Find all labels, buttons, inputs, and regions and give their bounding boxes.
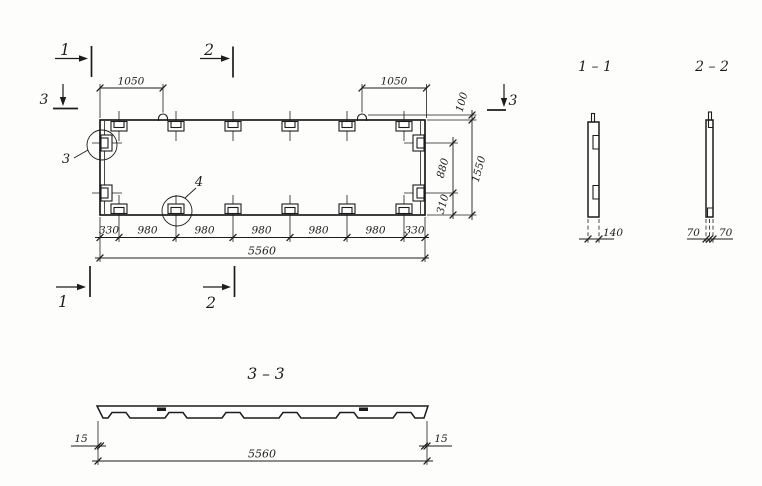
dim-label-15-right: 15 xyxy=(434,433,448,445)
dim-label-980-5: 980 xyxy=(365,225,385,237)
section-2-2-loop-stub xyxy=(709,112,712,120)
dim-label-140: 140 xyxy=(603,227,623,239)
section-2-2-title: 2 – 2 xyxy=(694,59,729,75)
loop-anchor-mark xyxy=(157,408,166,412)
dim-label-1050-right: 1050 xyxy=(381,76,408,88)
dim-label-980-2: 980 xyxy=(194,225,214,237)
dim-label-330-left: 330 xyxy=(99,225,119,237)
cut-1-top-label: 1 xyxy=(60,41,70,59)
dim-label-5560-plan: 5560 xyxy=(248,245,276,258)
section-3-3-profile xyxy=(97,406,428,418)
dim-label-70-left: 70 xyxy=(687,227,701,239)
dim-label-15-left: 15 xyxy=(74,433,88,445)
dim-label-980-3: 980 xyxy=(251,225,271,237)
detail-3-label: 3 xyxy=(62,152,70,167)
dim-label-880: 880 xyxy=(435,157,452,180)
cut-mark-2-top: 2 xyxy=(200,41,233,78)
dim-label-980-4: 980 xyxy=(308,225,328,237)
dim-label-5560-section: 5560 xyxy=(248,448,276,461)
top-edge-tabs xyxy=(111,122,412,132)
plan-view: 3 4 1050 1050 100 1550 xyxy=(40,41,518,312)
section-2-2-body xyxy=(706,120,713,217)
section-1-1-title: 1 – 1 xyxy=(578,59,612,75)
side-edge-tabs xyxy=(101,135,424,201)
cut-mark-1-bottom: 1 xyxy=(56,266,90,311)
dim-label-100: 100 xyxy=(454,91,471,114)
cut-mark-3-right: 3 xyxy=(487,84,518,110)
dim-label-70-right: 70 xyxy=(719,227,733,239)
dim-top: 1050 1050 xyxy=(97,76,430,119)
cut-2-bottom-label: 2 xyxy=(205,294,216,312)
dim-label-310: 310 xyxy=(435,193,452,216)
panel-outline xyxy=(100,120,425,215)
detail-3-leader xyxy=(74,150,88,158)
dim-label-1550: 1550 xyxy=(470,154,489,183)
bottom-edge-tabs xyxy=(111,204,412,214)
section-1-1: 1 – 1 140 xyxy=(578,59,623,243)
cut-3-right-label: 3 xyxy=(509,93,518,109)
loop-anchor-mark xyxy=(359,408,368,412)
dim-label-980-1: 980 xyxy=(137,225,157,237)
engineering-drawing: 3 4 1050 1050 100 1550 xyxy=(0,0,762,486)
dim-label-1050-left: 1050 xyxy=(118,76,145,88)
cut-mark-1-top: 1 xyxy=(55,41,92,77)
dim-right: 100 1550 880 310 xyxy=(368,91,488,220)
dim-bottom: 330 980 980 980 980 980 330 5560 xyxy=(95,217,429,262)
section-1-1-loop-stub xyxy=(592,114,595,123)
section-3-3: 3 – 3 15 15 5560 xyxy=(71,365,452,465)
cut-3-left-label: 3 xyxy=(40,92,49,108)
dim-label-330-right: 330 xyxy=(404,225,424,237)
cut-mark-2-bottom: 2 xyxy=(203,266,235,312)
section-2-2: 2 – 2 70 70 xyxy=(687,59,733,243)
cut-mark-3-left: 3 xyxy=(40,84,78,109)
cut-1-bottom-label: 1 xyxy=(58,293,68,311)
cut-2-top-label: 2 xyxy=(203,41,214,59)
section-3-3-title: 3 – 3 xyxy=(247,365,284,383)
detail-4-label: 4 xyxy=(194,175,203,190)
